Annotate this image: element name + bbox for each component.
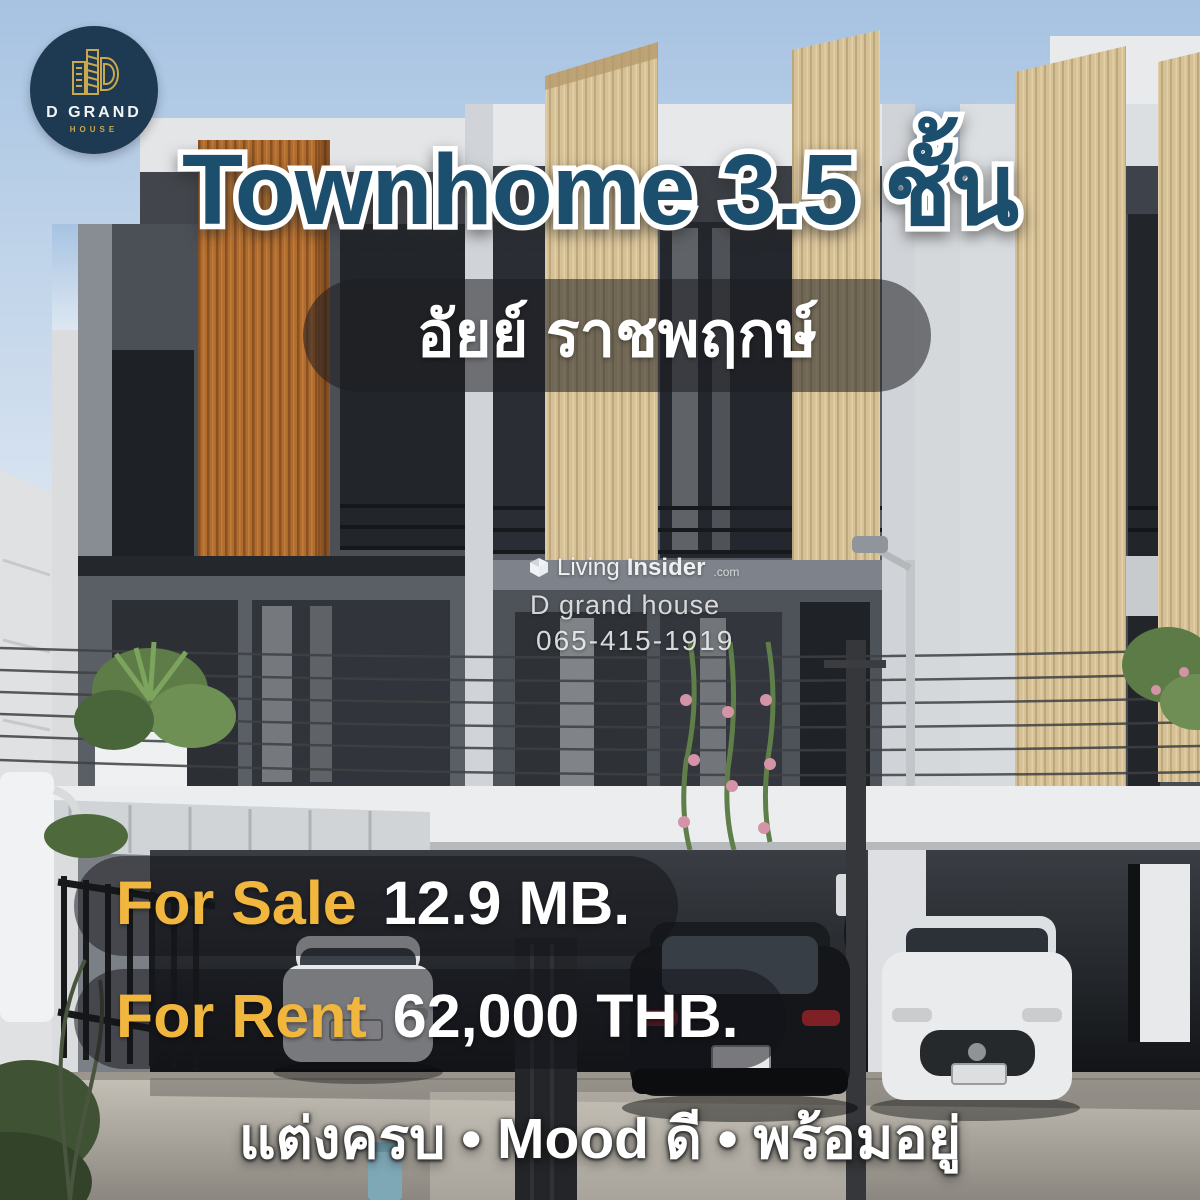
white-suv	[870, 916, 1080, 1121]
tagline: แต่งครบ • Mood ดี • พร้อมอยู่	[0, 1094, 1200, 1184]
for-sale-value: 12.9 MB.	[383, 868, 631, 938]
headline: Townhome 3.5 ชั้น Townhome 3.5 ชั้น	[0, 138, 1200, 243]
living-insider-cube-icon	[528, 557, 550, 579]
watermark-brand-bold: Insider	[627, 554, 706, 582]
brand-logo: D GRAND HOUSE	[30, 26, 158, 154]
watermark-phone: 065-415-1919	[536, 625, 739, 657]
watermark-brand-light: Living	[557, 554, 620, 582]
watermark-brand-suffix: .com	[713, 565, 739, 579]
headline-text: Townhome 3.5 ชั้น	[182, 134, 1018, 246]
project-name-text: อัยย์ ราชพฤกษ์	[417, 284, 818, 384]
property-ad-poster: D GRAND HOUSE Townhome 3.5 ชั้น Townhome…	[0, 0, 1200, 1200]
tagline-text: แต่งครบ • Mood ดี • พร้อมอยู่	[239, 1107, 961, 1171]
brand-name: D GRAND	[46, 104, 142, 122]
brand-subname: HOUSE	[70, 125, 118, 134]
project-name-pill: อัยย์ ราชพฤกษ์	[303, 279, 931, 392]
watermark-brand-row: LivingInsider.com	[528, 554, 739, 582]
for-rent-value: 62,000 THB.	[393, 981, 739, 1051]
watermark: LivingInsider.com D grand house 065-415-…	[528, 554, 739, 657]
buildings-line-icon	[65, 46, 123, 100]
watermark-agency: D grand house	[530, 590, 739, 621]
for-sale-badge: For Sale 12.9 MB.	[74, 856, 678, 956]
price-badges: For Sale 12.9 MB. For Rent 62,000 THB.	[74, 856, 787, 1069]
for-rent-badge: For Rent 62,000 THB.	[74, 969, 787, 1069]
for-rent-label: For Rent	[116, 981, 367, 1051]
for-sale-label: For Sale	[116, 868, 357, 938]
